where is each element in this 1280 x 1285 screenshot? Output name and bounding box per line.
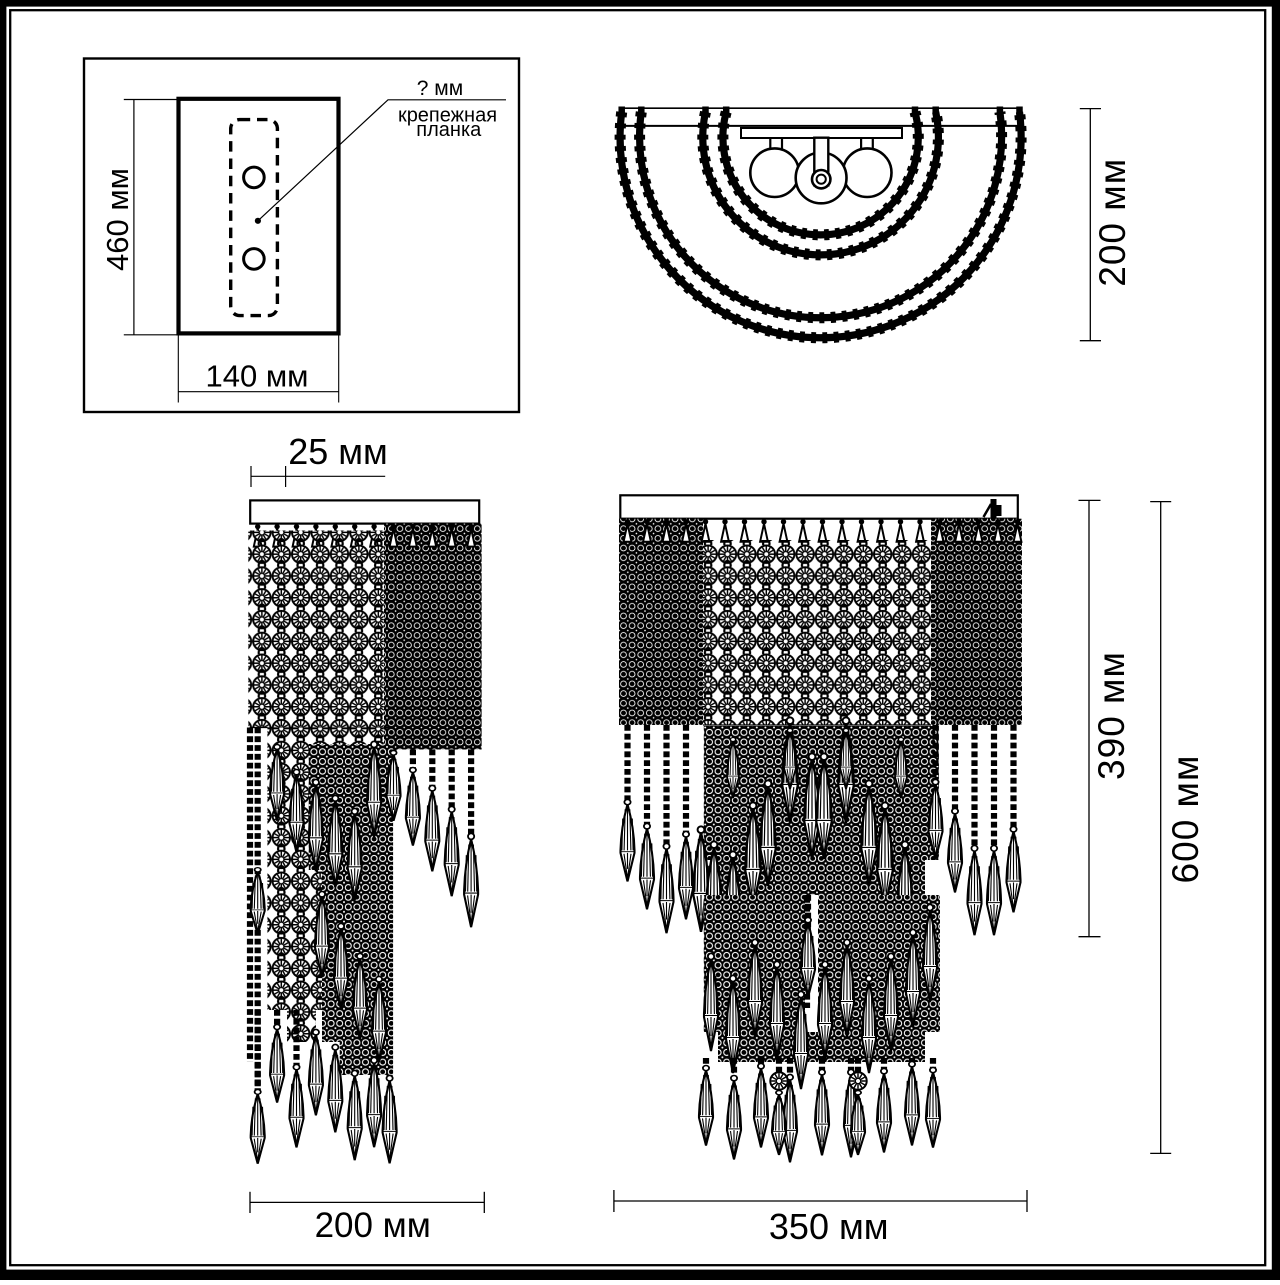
svg-text:200 мм: 200 мм xyxy=(315,1206,431,1245)
svg-text:200 мм: 200 мм xyxy=(1092,158,1133,287)
svg-text:350 мм: 350 мм xyxy=(769,1206,889,1247)
svg-text:140 мм: 140 мм xyxy=(206,358,309,393)
svg-text:планка: планка xyxy=(416,119,482,141)
svg-text:600 мм: 600 мм xyxy=(1165,755,1206,884)
svg-text:? мм: ? мм xyxy=(417,77,463,100)
svg-text:25 мм: 25 мм xyxy=(288,431,388,472)
svg-text:460 мм: 460 мм xyxy=(100,168,135,271)
svg-text:390 мм: 390 мм xyxy=(1091,651,1132,780)
